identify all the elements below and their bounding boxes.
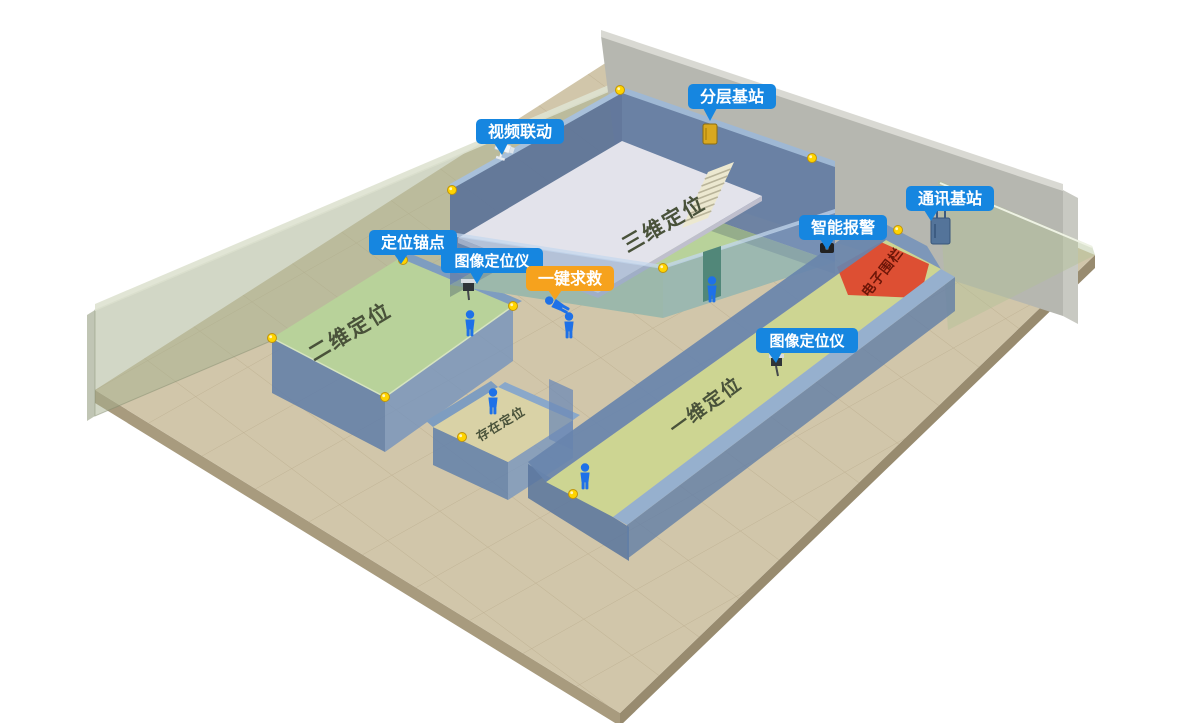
badge-positioning-anchor-label: 定位锚点 bbox=[380, 233, 445, 252]
anchor-dot bbox=[458, 433, 467, 442]
anchor-dot bbox=[569, 490, 578, 499]
layered-base-station-device bbox=[703, 124, 717, 144]
badge-sos-label: 一键求救 bbox=[538, 269, 602, 288]
anchor-dot bbox=[448, 186, 457, 195]
anchor-dot bbox=[659, 264, 668, 273]
anchor-dot bbox=[509, 302, 518, 311]
anchor-dot bbox=[894, 226, 903, 235]
anchor-dot bbox=[616, 86, 625, 95]
anchor-dot bbox=[808, 154, 817, 163]
badge-image-locator-1-label: 图像定位仪 bbox=[454, 252, 530, 270]
anchor-dot bbox=[381, 393, 390, 402]
scene-canvas: 二维定位 存在定位 三维定位 bbox=[0, 0, 1200, 723]
badge-smart-alarm-label: 智能报警 bbox=[811, 218, 875, 237]
badge-layered-base-station-label: 分层基站 bbox=[700, 87, 764, 106]
anchor-dot bbox=[268, 334, 277, 343]
badge-communication-base-station-label: 通讯基站 bbox=[918, 189, 982, 208]
badge-image-locator-2-label: 图像定位仪 bbox=[769, 332, 845, 350]
isometric-scene: 二维定位 存在定位 三维定位 bbox=[0, 0, 1200, 723]
glass-wall-left-end bbox=[87, 310, 95, 421]
badge-video-linkage-label: 视频联动 bbox=[488, 122, 552, 141]
